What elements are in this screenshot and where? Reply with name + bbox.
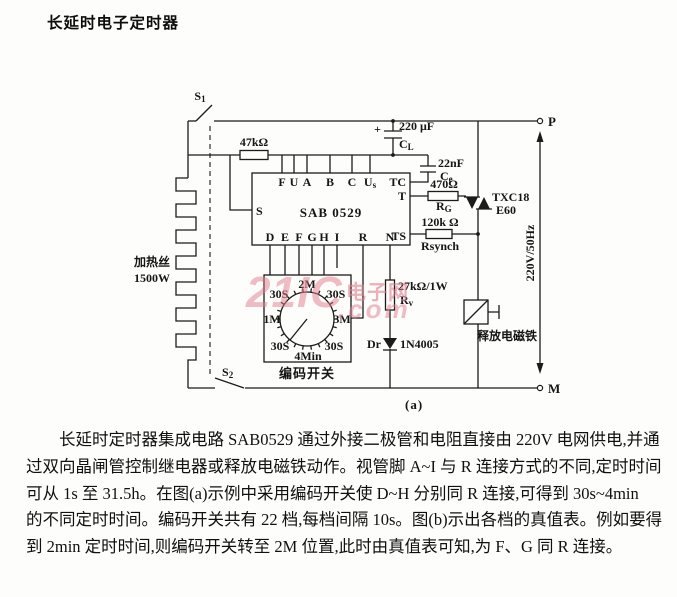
dial-pos-bottom-right: 30S (325, 339, 344, 353)
switch-s2: S2 (215, 365, 244, 388)
ic-pin-f: F (278, 175, 285, 189)
capacitor-ce-value: 22nF (438, 156, 464, 170)
ic-pin-a: A (303, 175, 312, 189)
figure-label: (a) (405, 397, 423, 412)
resistor-rsynch-value: 120k Ω (421, 215, 459, 229)
paragraph-line: 可从 1s 至 31.5h。在图(a)示例中采用编码开关使 D~H 分别同 R … (26, 481, 662, 508)
dial-pos-top-right: 30S (327, 287, 346, 301)
ic-name: SAB 0529 (300, 205, 363, 220)
ic-pin-f2: F (295, 230, 302, 244)
release-electromagnet: 释放电磁铁 (464, 300, 537, 343)
resistor-rg-value: 470Ω (430, 177, 458, 191)
paragraph-line: 的不同定时时间。编码开关共有 22 档,每档间隔 10s。图(b)示出各档的真值… (26, 507, 662, 534)
ic-pin-c: C (348, 175, 357, 189)
capacitor-cl-name: CL (399, 137, 414, 152)
ic-sab0529: SAB 0529 F U A B C Us S TC T TS D E F G … (252, 173, 410, 245)
dial-pos-top-left: 30S (270, 287, 289, 301)
mains-annotation: P M 220V/50Hz (523, 114, 561, 396)
paragraph-line: 过双向晶闸管控制继电器或释放电磁铁动作。视管脚 A~I 与 R 连接方式的不同,… (26, 454, 662, 481)
capacitor-cl: + 220 μF CL (374, 119, 434, 152)
dial-pos-bottom-left: 30S (271, 339, 290, 353)
triac-model: TXC18 (492, 190, 529, 204)
ic-pin-u: U (290, 175, 299, 189)
ic-pin-b: B (326, 175, 334, 189)
terminal-m-label: M (548, 381, 561, 396)
paragraph-line: 长延时定时器集成电路 SAB0529 通过外接二极管和电阻直接由 220V 电网… (26, 427, 662, 454)
dial-pos-bottom: 4Min (294, 349, 322, 363)
switch-s1: S1 (194, 89, 212, 121)
scanned-page: 长延时电子定时器 (0, 0, 677, 597)
heater-name: 加热丝 (133, 254, 170, 269)
dial-pointer (290, 319, 307, 340)
ic-pin-i: I (335, 230, 340, 244)
circuit-diagram: S1 S2 47kΩ 加热丝 1500W + 220 μF CL 22nF (0, 0, 677, 422)
ic-pin-g: G (307, 230, 316, 244)
resistor-rv: 27kΩ/1W Rv (386, 279, 448, 310)
heater-power: 1500W (134, 271, 170, 285)
diode-model: 1N4005 (400, 337, 439, 351)
dial-pos-top: 2M (298, 277, 315, 291)
ic-pin-t: T (398, 189, 406, 203)
description-text: 长延时定时器集成电路 SAB0529 通过外接二极管和电阻直接由 220V 电网… (26, 427, 662, 561)
resistor-rv-value: 27kΩ/1W (398, 279, 448, 293)
capacitor-cl-value: 220 μF (399, 119, 434, 133)
coding-switch-label: 编码开关 (279, 366, 335, 381)
resistor-rv-name: Rv (400, 293, 414, 308)
ic-pin-s: S (256, 204, 263, 218)
mains-voltage-label: 220V/50Hz (523, 224, 537, 281)
resistor-rg: 470Ω RG (428, 177, 458, 214)
diode-dr: Dr 1N4005 (367, 337, 439, 351)
ic-pin-d: D (266, 230, 275, 244)
resistor-47k-value: 47kΩ (240, 135, 269, 149)
ic-pin-e: E (281, 230, 289, 244)
ic-pin-h: H (319, 230, 329, 244)
resistor-rg-name: RG (436, 199, 452, 214)
resistor-47k: 47kΩ (240, 135, 269, 160)
triac: TXC18 E60 (464, 190, 529, 217)
diode-name: Dr (367, 337, 382, 351)
ic-pin-r: R (359, 230, 368, 244)
resistor-rsynch-name: Rsynch (421, 239, 459, 253)
paragraph-line: 到 2min 定时时间,则编码开关转至 2M 位置,此时由真值表可知,为 F、G… (26, 534, 662, 561)
ic-pin-tc: TC (389, 175, 406, 189)
dial-pos-right: 3M (333, 312, 350, 326)
terminal-p-label: P (548, 114, 557, 129)
electromagnet-label: 释放电磁铁 (477, 328, 537, 343)
switch-s2-label: S2 (222, 365, 234, 380)
switch-s1-label: S1 (194, 89, 206, 104)
capacitor-cl-polarity: + (374, 122, 381, 136)
ic-pin-n: N (386, 230, 395, 244)
coding-switch: 2M 30S 30S 1M 3M 30S 30S 4Min 编码开关 (263, 275, 351, 381)
dial-pos-left: 1M (263, 312, 280, 326)
heater-element: 加热丝 1500W (133, 178, 196, 388)
triac-model-2: E60 (496, 203, 516, 217)
ic-pin-us: Us (364, 175, 377, 190)
